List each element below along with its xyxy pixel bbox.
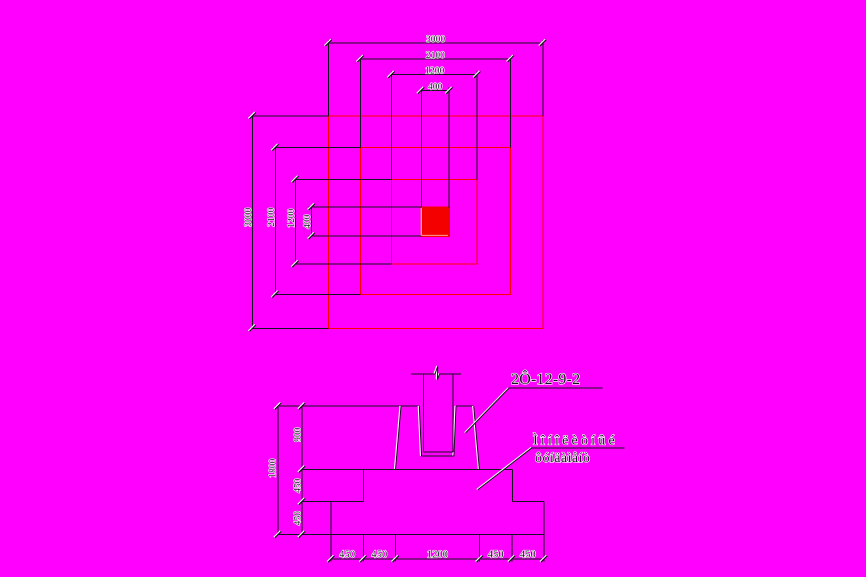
svg-text:2100: 2100 — [426, 50, 445, 60]
svg-text:400: 400 — [428, 82, 443, 92]
svg-text:ôóíäàìåíò: ôóíäàìåíò — [535, 451, 590, 466]
svg-text:400: 400 — [302, 214, 312, 229]
svg-text:Ìîíîëèòíûé: Ìîíîëèòíûé — [533, 432, 618, 449]
svg-text:450: 450 — [292, 511, 302, 526]
svg-text:2Ô-12-9-2: 2Ô-12-9-2 — [511, 369, 580, 388]
svg-text:450: 450 — [292, 478, 302, 493]
svg-text:1200: 1200 — [427, 549, 448, 560]
svg-text:450: 450 — [520, 549, 536, 560]
svg-text:450: 450 — [372, 549, 388, 560]
svg-text:3000: 3000 — [426, 34, 445, 44]
svg-text:1200: 1200 — [425, 66, 444, 76]
svg-text:1200: 1200 — [286, 208, 296, 227]
svg-text:900: 900 — [292, 427, 302, 442]
svg-text:450: 450 — [488, 549, 504, 560]
svg-text:2100: 2100 — [266, 207, 276, 226]
svg-text:450: 450 — [339, 549, 355, 560]
svg-text:1800: 1800 — [267, 458, 277, 477]
svg-text:3000: 3000 — [243, 207, 253, 226]
